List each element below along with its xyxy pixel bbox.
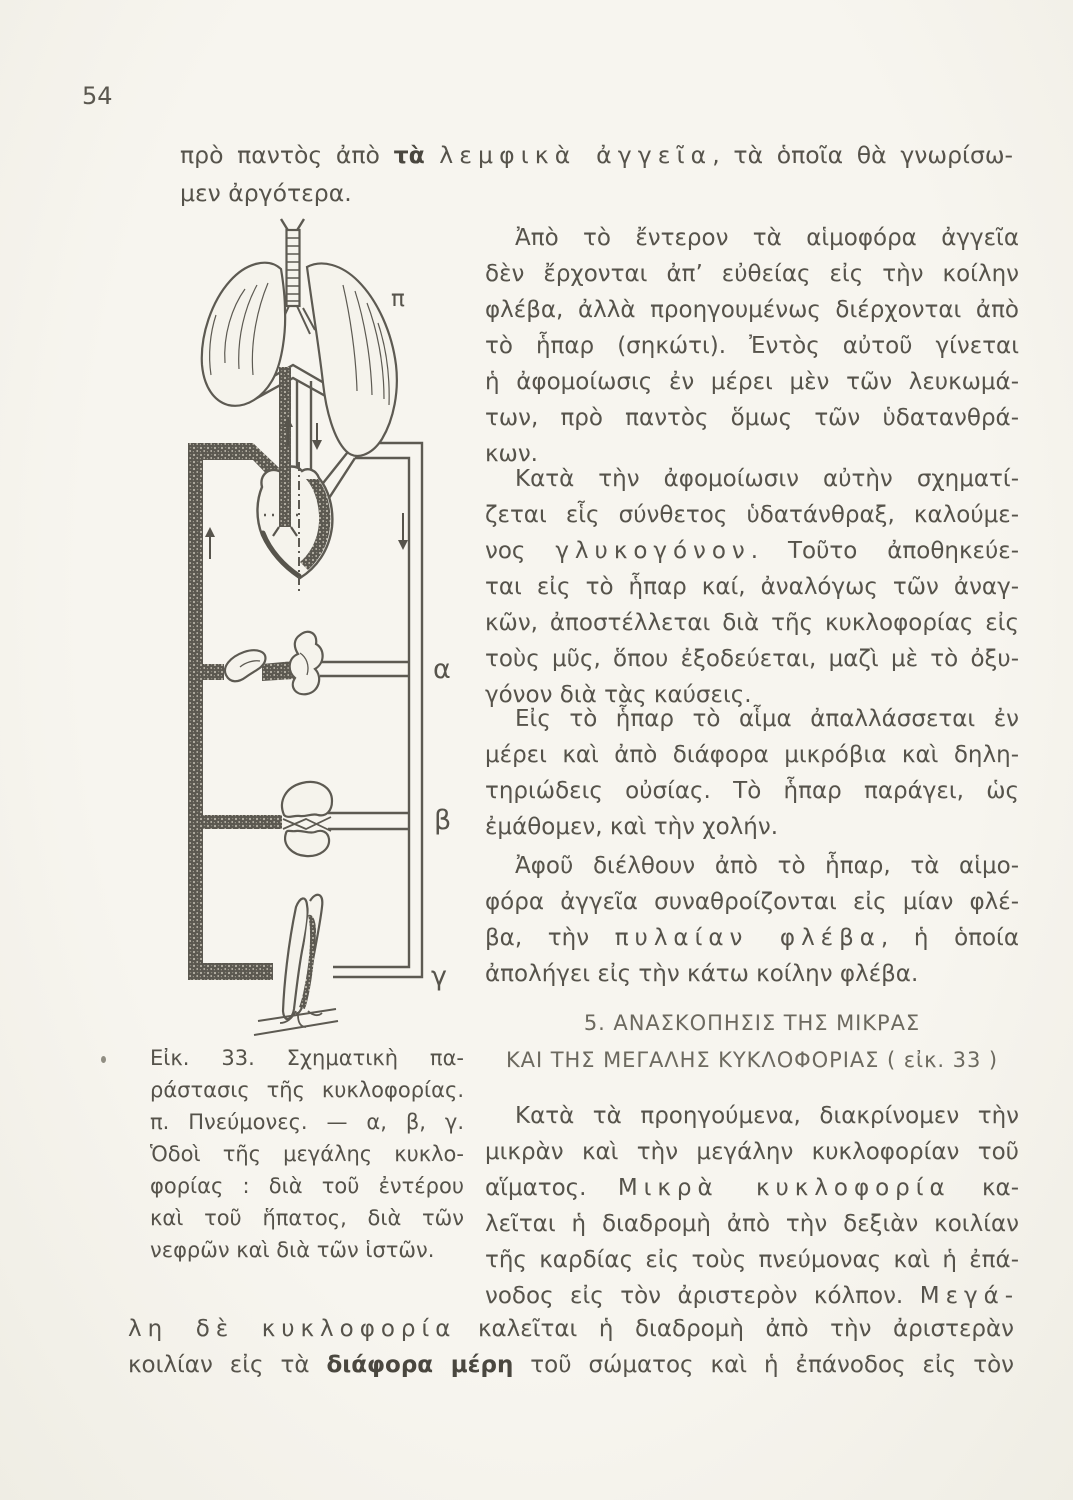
- text-line: πρὸ παντὸς ἀπὸ τὰ λεμφικὰ ἀγγεῖα, τὰ ὁπο…: [180, 136, 1013, 174]
- text-segment-spaced: λη δὲ κυκλοφορία: [128, 1316, 456, 1342]
- caption-line: Ὁδοὶ τῆς μεγάλης κυκλο-: [150, 1138, 464, 1170]
- kidneys-illustration: [282, 782, 332, 856]
- text-segment: . Τοῦτο ἀποθηκεύε-: [751, 538, 1019, 564]
- text-segment: κοιλίαν εἰς τὰ: [128, 1352, 326, 1378]
- paragraph-2: Κατὰ τὴν ἀφομοίωσιν αὐτὴν σχηματί- ζεται…: [485, 461, 1019, 713]
- text-line: ἐμάθομεν, καὶ τὴν χολήν.: [485, 809, 1019, 845]
- intestine-illustration: [290, 632, 323, 695]
- text-line: κῶν, ἀποστέλλεται διὰ τῆς κυκλοφορίας εἰ…: [485, 605, 1019, 641]
- caption-line: Εἰκ. 33. Σχηματικὴ πα-: [150, 1042, 464, 1074]
- text-line: Κατὰ τὴν ἀφομοίωσιν αὐτὴν σχηματί-: [485, 461, 1019, 497]
- label-alpha: α: [433, 654, 451, 685]
- text-segment: , τὰ ὁποῖα θὰ γνωρίσω-: [712, 141, 1013, 169]
- text-segment: , ἡ ὁποία: [881, 925, 1019, 951]
- text-segment: πρὸ παντὸς ἀπὸ: [180, 141, 394, 169]
- text-segment: νος: [485, 538, 555, 564]
- paragraph-5: Κατὰ τὰ προηγούμενα, διακρίνομεν τὴν μικ…: [485, 1098, 1019, 1314]
- text-segment-bold: διάφορα μέρη: [326, 1352, 513, 1378]
- caption-line: φορίας : διὰ τοῦ ἐντέρου: [150, 1170, 464, 1202]
- label-pi: π: [391, 286, 405, 312]
- text-segment-spaced: Μικρὰ κυκλοφορία: [618, 1175, 951, 1201]
- text-segment-spaced: Μεγά-: [920, 1283, 1019, 1309]
- text-line: φόρα ἀγγεῖα συναθροίζονται εἰς μίαν φλέ-: [485, 884, 1019, 920]
- text-line: βα, τὴν πυλαίαν φλέβα, ἡ ὁποία: [485, 920, 1019, 956]
- text-line: λεῖται ἡ διαδρομὴ ἀπὸ τὴν δεξιὰν κοιλίαν: [485, 1206, 1019, 1242]
- text-line: Ἀφοῦ διέλθουν ἀπὸ τὸ ἧπαρ, τὰ αἱμο-: [485, 848, 1019, 884]
- figure-caption: Εἰκ. 33. Σχηματικὴ πα- ράστασις τῆς κυκλ…: [150, 1042, 464, 1266]
- liver-illustration: [225, 650, 265, 681]
- caption-line: ράστασις τῆς κυκλοφορίας.: [150, 1074, 464, 1106]
- text-line: Κατὰ τὰ προηγούμενα, διακρίνομεν τὴν: [485, 1098, 1019, 1134]
- intro-paragraph: πρὸ παντὸς ἀπὸ τὰ λεμφικὰ ἀγγεῖα, τὰ ὁπο…: [180, 136, 1013, 212]
- section-heading-line: 5. ΑΝΑΣΚΟΠΗΣΙΣ ΤΗΣ ΜΙΚΡΑΣ: [470, 1005, 1034, 1042]
- figure-33-circulation-diagram: π α β γ: [150, 215, 470, 1060]
- text-line: Εἰς τὸ ἧπαρ τὸ αἷμα ἀπαλλάσσεται ἐν: [485, 701, 1019, 737]
- text-segment-spaced: πυλαίαν φλέβα: [615, 925, 881, 951]
- text-segment: καλεῖται ἡ διαδρομὴ ἀπὸ τὴν ἀριστερὰν: [456, 1316, 1014, 1342]
- text-line: μεν ἀργότερα.: [180, 174, 1013, 212]
- scan-speck: [101, 1056, 106, 1063]
- book-page: 54 πρὸ παντὸς ἀπὸ τὰ λεμφικὰ ἀγγεῖα, τὰ …: [0, 0, 1073, 1500]
- text-segment: αἵματος.: [485, 1175, 618, 1201]
- label-gamma: γ: [431, 961, 447, 992]
- text-line: κοιλίαν εἰς τὰ διάφορα μέρη τοῦ σώματος …: [128, 1347, 1014, 1383]
- caption-line: καὶ τοῦ ἥπατος, διὰ τῶν: [150, 1202, 464, 1234]
- text-segment: νοδος εἰς τὸν ἀριστερὸν κόλπον.: [485, 1283, 920, 1309]
- text-line: τηριώδεις οὐσίας. Τὸ ἧπαρ παράγει, ὡς: [485, 773, 1019, 809]
- text-line: μικρὰν καὶ τὴν μεγάλην κυκλοφορίαν τοῦ: [485, 1134, 1019, 1170]
- text-line: νος γλυκογόνον. Τοῦτο ἀποθηκεύε-: [485, 533, 1019, 569]
- bottom-paragraph: λη δὲ κυκλοφορία καλεῖται ἡ διαδρομὴ ἀπὸ…: [128, 1311, 1014, 1383]
- text-segment-bold: τὰ: [394, 141, 440, 169]
- text-segment-spaced: λεμφικὰ ἀγγεῖα: [439, 141, 712, 169]
- text-line: ἀπολήγει εἰς τὴν κάτω κοίλην φλέβα.: [485, 956, 1019, 992]
- text-line: αἵματος. Μικρὰ κυκλοφορία κα-: [485, 1170, 1019, 1206]
- paragraph-3: Εἰς τὸ ἧπαρ τὸ αἷμα ἀπαλλάσσεται ἐν μέρε…: [485, 701, 1019, 845]
- text-line: τοὺς μῦς, ὅπου ἐξοδεύεται, μαζὶ μὲ τὸ ὀξ…: [485, 641, 1019, 677]
- text-line: νοδος εἰς τὸν ἀριστερὸν κόλπον. Μεγά-: [485, 1278, 1019, 1314]
- section-heading: 5. ΑΝΑΣΚΟΠΗΣΙΣ ΤΗΣ ΜΙΚΡΑΣ ΚΑΙ ΤΗΣ ΜΕΓΑΛΗ…: [470, 1005, 1034, 1079]
- text-line: φλέβα, ἀλλὰ προηγουμένως διέρχονται ἀπὸ: [485, 292, 1019, 328]
- text-line: ἡ ἀφομοίωσις ἐν μέρει μὲν τῶν λευκωμά-: [485, 364, 1019, 400]
- text-line: των, πρὸ παντὸς ὅμως τῶν ὑδατανθρά-: [485, 400, 1019, 436]
- paragraph-1: Ἀπὸ τὸ ἔντερον τὰ αἱμοφόρα ἀγγεῖα δὲν ἔρ…: [485, 220, 1019, 472]
- text-line: Ἀπὸ τὸ ἔντερον τὰ αἱμοφόρα ἀγγεῖα: [485, 220, 1019, 256]
- text-line: τῆς καρδίας εἰς τοὺς πνεύμονας καὶ ἡ ἐπά…: [485, 1242, 1019, 1278]
- text-segment: βα, τὴν: [485, 925, 615, 951]
- text-line: ζεται εἷς σύνθετος ὑδατάνθραξ, καλούμε-: [485, 497, 1019, 533]
- label-beta: β: [434, 805, 451, 836]
- page-number: 54: [82, 82, 113, 110]
- text-line: τὸ ἧπαρ (σηκώτι). Ἐντὸς αὐτοῦ γίνεται: [485, 328, 1019, 364]
- caption-line: π. Πνεύμονες. — α, β, γ.: [150, 1106, 464, 1138]
- text-segment-spaced: γλυκογόνον: [555, 538, 750, 564]
- text-line: ται εἰς τὸ ἧπαρ καί, ἀναλόγως τῶν ἀναγ-: [485, 569, 1019, 605]
- text-segment: τοῦ σώματος καὶ ἡ ἐπάνοδος εἰς τὸν: [513, 1352, 1014, 1378]
- caption-line: νεφρῶν καὶ διὰ τῶν ἱστῶν.: [150, 1234, 464, 1266]
- heart-illustration: [257, 462, 332, 591]
- paragraph-4: Ἀφοῦ διέλθουν ἀπὸ τὸ ἧπαρ, τὰ αἱμο- φόρα…: [485, 848, 1019, 992]
- text-line: λη δὲ κυκλοφορία καλεῖται ἡ διαδρομὴ ἀπὸ…: [128, 1311, 1014, 1347]
- text-segment: κα-: [951, 1175, 1019, 1201]
- section-heading-line: ΚΑΙ ΤΗΣ ΜΕΓΑΛΗΣ ΚΥΚΛΟΦΟΡΙΑΣ ( εἰκ. 33 ): [470, 1042, 1034, 1079]
- text-line: μέρει καὶ ἀπὸ διάφορα μικρόβια καὶ δηλη-: [485, 737, 1019, 773]
- text-line: δὲν ἔρχονται ἀπ’ εὐθείας εἰς τὴν κοίλην: [485, 256, 1019, 292]
